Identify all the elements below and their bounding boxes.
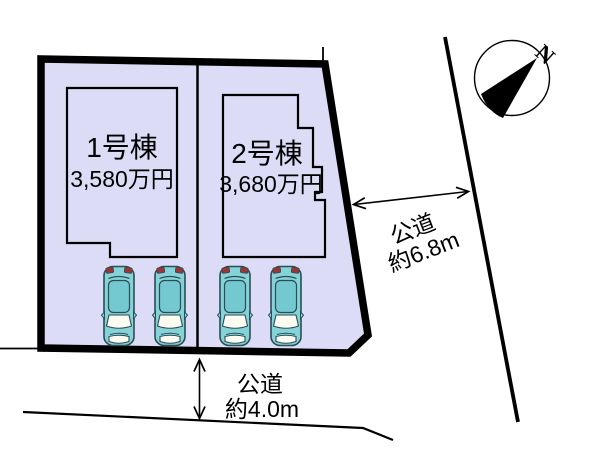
south-road-width: 約4.0m — [225, 396, 299, 422]
car-icon — [153, 267, 188, 346]
building-1-label: 1号棟 — [86, 132, 158, 163]
car-icon — [218, 267, 253, 346]
car-icon — [102, 267, 137, 346]
building-2-price: 3,680万円 — [219, 171, 323, 197]
south-road-name: 公道 — [237, 371, 283, 397]
building-1-price: 3,580万円 — [70, 166, 174, 192]
car-icon — [269, 267, 304, 346]
building-2-label: 2号棟 — [231, 138, 303, 169]
site-plan: 1号棟 3,580万円 2号棟 3,680万円 公道 約4.0m 公道 約6.8… — [0, 0, 604, 460]
site-plan-canvas: 1号棟 3,580万円 2号棟 3,680万円 公道 約4.0m 公道 約6.8… — [0, 0, 604, 460]
